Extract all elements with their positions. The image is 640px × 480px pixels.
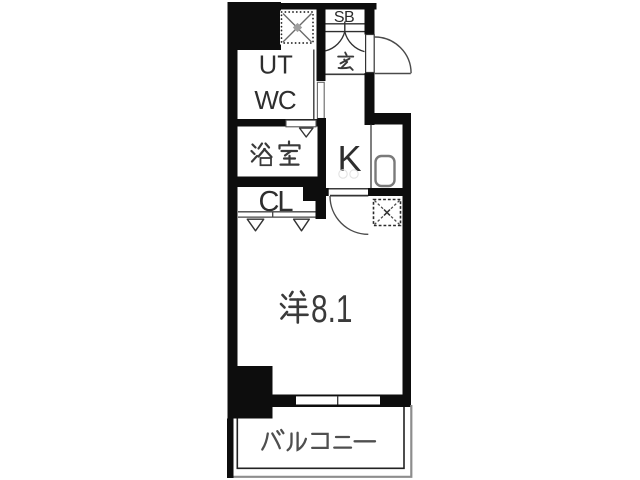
- svg-text:8.1: 8.1: [311, 288, 353, 331]
- svg-text:UT: UT: [259, 51, 293, 79]
- svg-text:WC: WC: [254, 85, 296, 115]
- svg-text:SB: SB: [334, 9, 354, 26]
